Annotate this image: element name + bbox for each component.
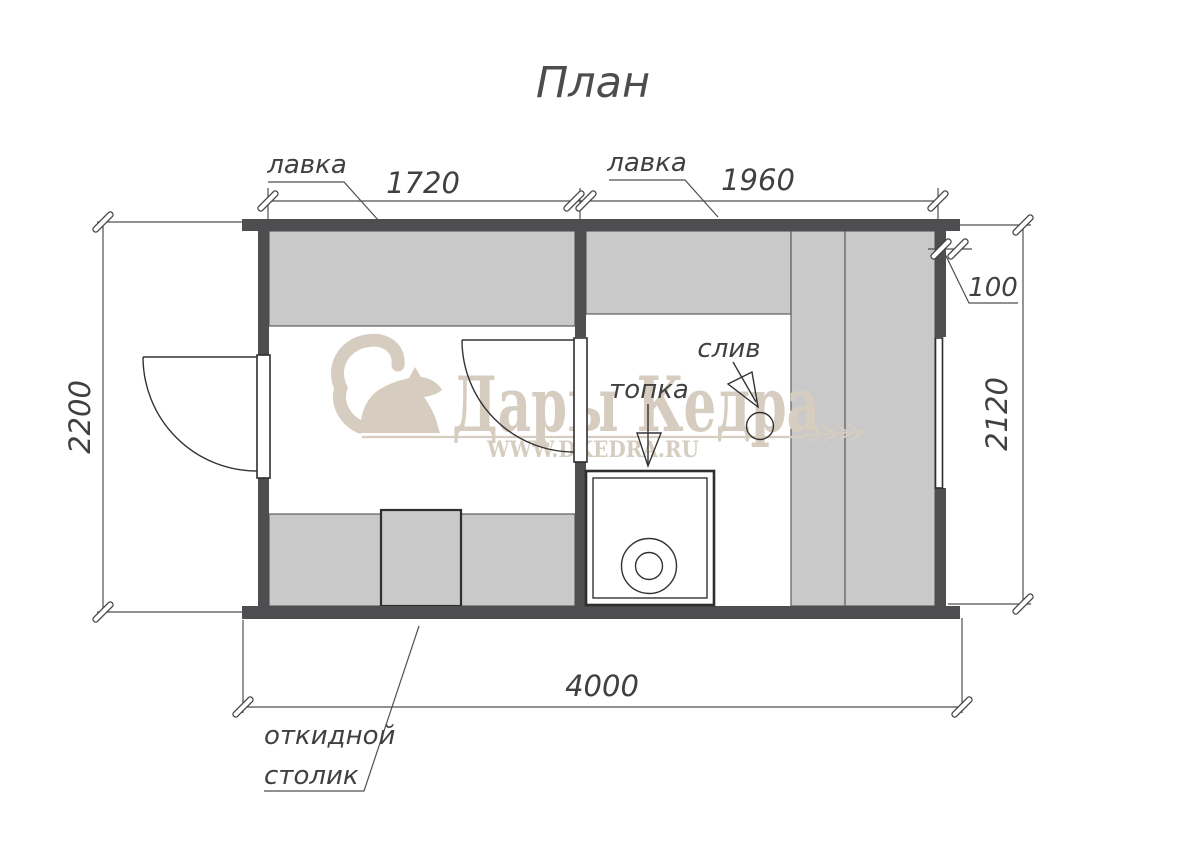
- door-left-leaf: [257, 355, 270, 478]
- bench-left-bottom-1: [269, 514, 381, 606]
- page-title: План: [536, 58, 650, 108]
- bench-right-leader: [609, 180, 718, 217]
- folding-table: [381, 510, 461, 606]
- dim-text-1720: 1720: [386, 166, 460, 200]
- window-right: [936, 338, 943, 488]
- wall-middle-lower: [575, 462, 586, 606]
- label-folding-table-line2: столик: [264, 761, 359, 791]
- dim-text-100: 100: [968, 273, 1018, 303]
- door-left-swing-arc: [143, 357, 257, 471]
- floor-plan-svg: Дары Кедра WWW.DKEDRA.RU: [0, 0, 1200, 848]
- wall-right-lower: [935, 488, 946, 606]
- watermark-url-text: WWW.DKEDRA.RU: [486, 437, 699, 463]
- stove-circle-inner: [636, 553, 663, 580]
- bench-right-top: [586, 231, 791, 314]
- dim-text-2200: 2200: [63, 380, 97, 454]
- bench-right-tier-2: [845, 231, 935, 606]
- bench-left-bottom-2: [461, 514, 575, 606]
- floor-plan-page: Дары Кедра WWW.DKEDRA.RU: [0, 0, 1200, 848]
- door-middle-leaf: [574, 338, 587, 462]
- label-folding-table-line1: откидной: [264, 721, 395, 751]
- label-bench-left: лавка: [266, 150, 347, 180]
- stove-circle-outer: [622, 539, 677, 594]
- label-stove: топка: [609, 375, 689, 405]
- label-bench-right: лавка: [606, 148, 687, 178]
- wall-bottom: [242, 606, 960, 619]
- bench-left-top: [269, 231, 575, 326]
- wall-middle-upper: [575, 231, 586, 337]
- label-drain: слив: [697, 334, 760, 364]
- wall-left-upper: [258, 231, 269, 355]
- dim-text-4000: 4000: [565, 669, 639, 703]
- watermark: Дары Кедра WWW.DKEDRA.RU: [337, 340, 866, 463]
- watermark-squirrel-body: [361, 367, 442, 433]
- dim-text-2120: 2120: [980, 377, 1014, 451]
- wall-top: [242, 219, 960, 231]
- dim-text-1960: 1960: [721, 163, 795, 197]
- wall-left-lower: [258, 478, 269, 606]
